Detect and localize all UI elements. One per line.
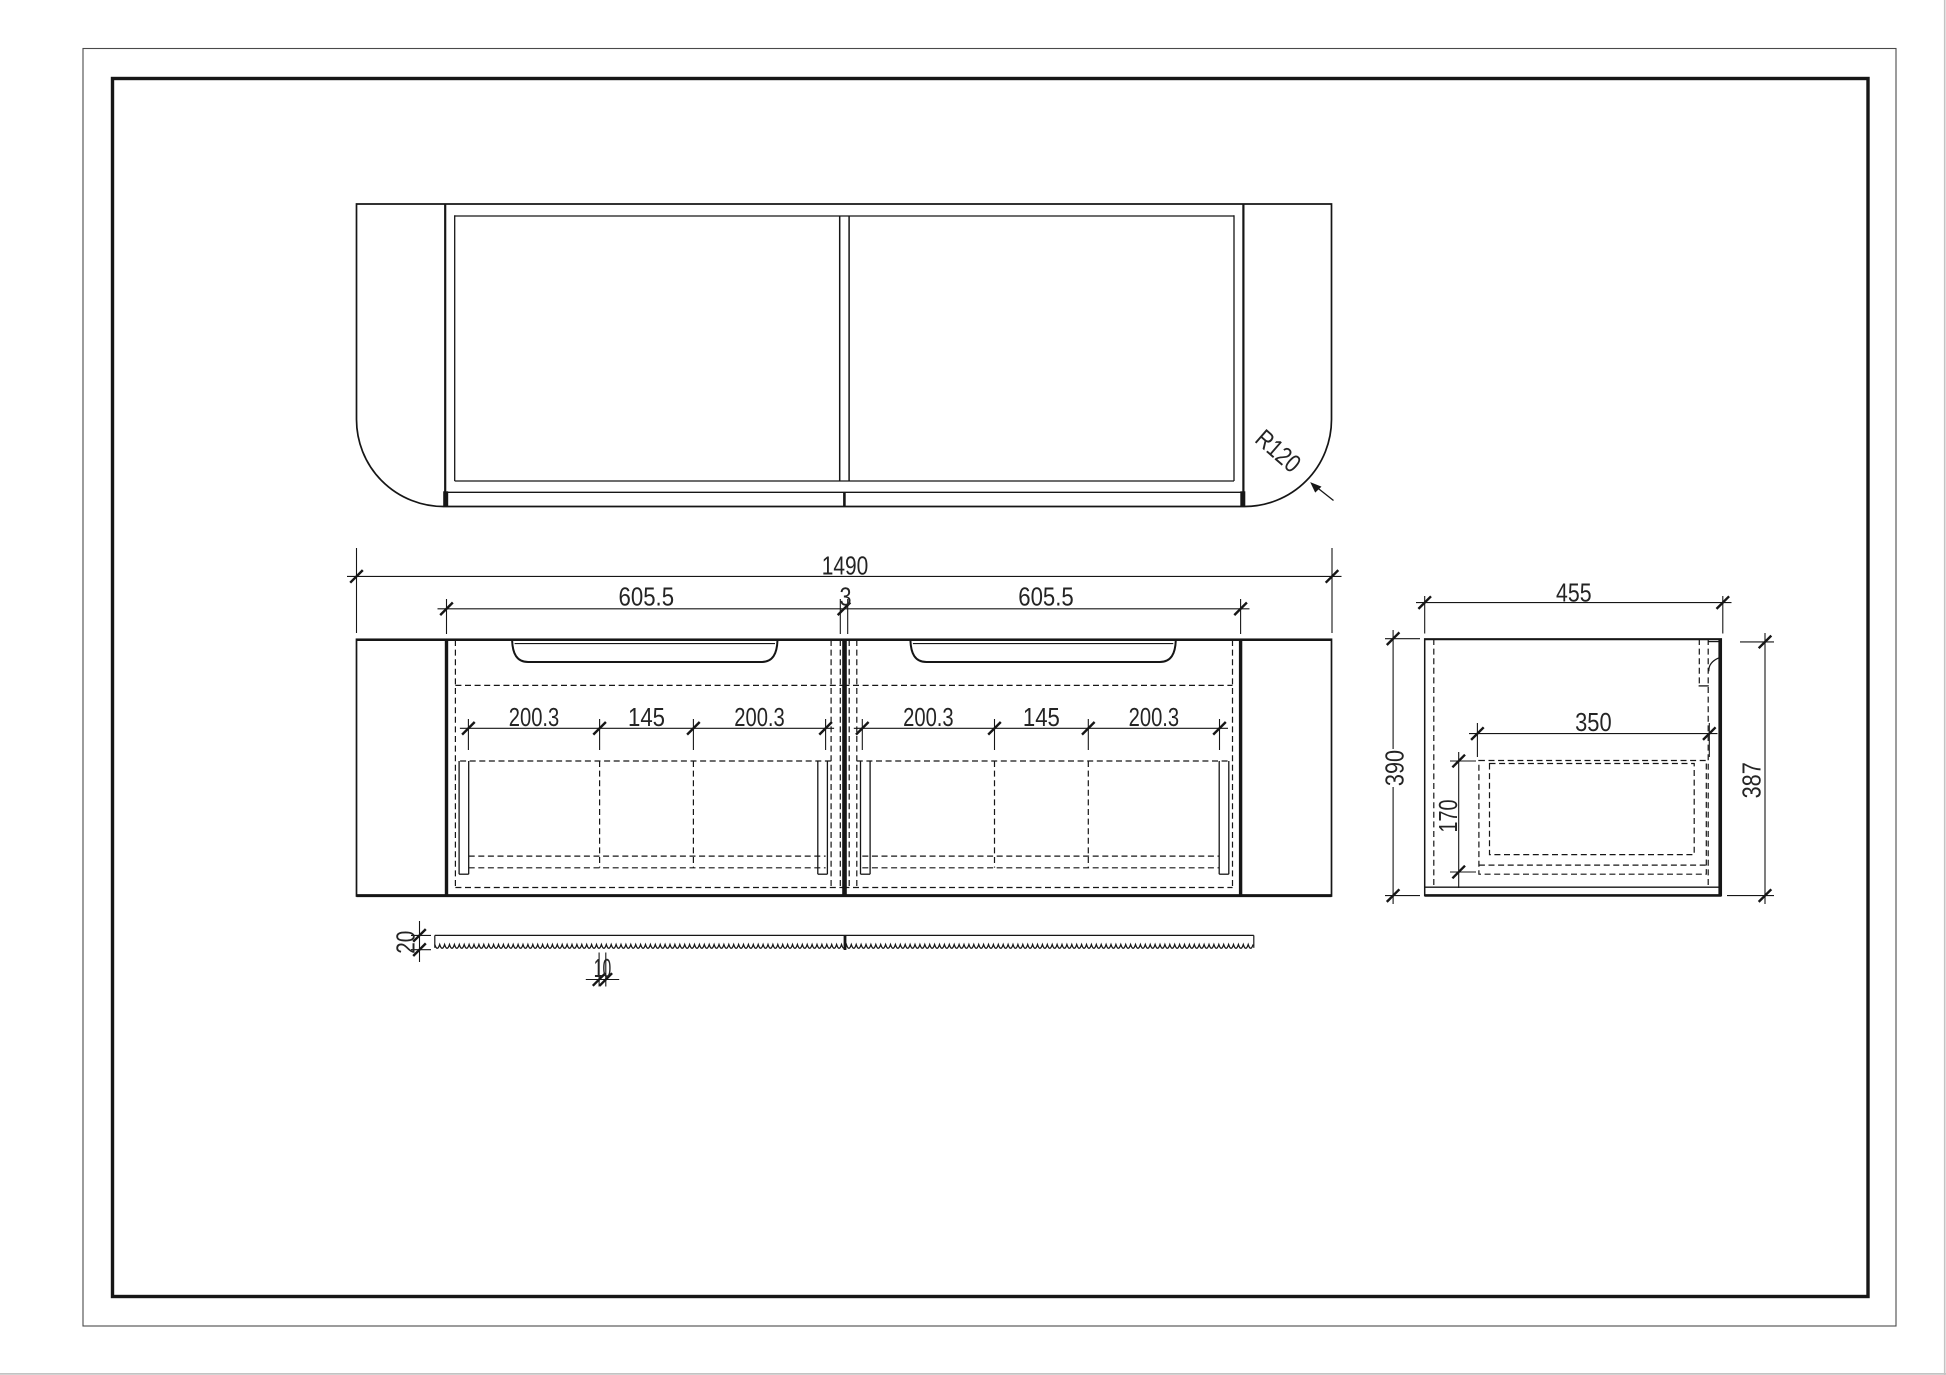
- svg-text:1490: 1490: [822, 553, 869, 581]
- svg-text:455: 455: [1556, 580, 1592, 608]
- svg-text:145: 145: [1023, 704, 1060, 732]
- svg-text:200.3: 200.3: [903, 704, 954, 732]
- svg-text:R120: R120: [1250, 424, 1306, 478]
- svg-text:605.5: 605.5: [619, 584, 675, 612]
- svg-text:200.3: 200.3: [509, 704, 560, 732]
- svg-text:350: 350: [1575, 709, 1612, 737]
- svg-text:20: 20: [393, 931, 421, 954]
- svg-text:170: 170: [1435, 800, 1463, 833]
- svg-text:3: 3: [840, 584, 852, 612]
- svg-text:387: 387: [1739, 762, 1767, 798]
- svg-text:145: 145: [628, 704, 665, 732]
- svg-text:605.5: 605.5: [1018, 584, 1074, 612]
- svg-text:200.3: 200.3: [1129, 704, 1180, 732]
- svg-text:10: 10: [594, 955, 612, 983]
- svg-text:200.3: 200.3: [734, 704, 785, 732]
- svg-text:390: 390: [1382, 750, 1410, 786]
